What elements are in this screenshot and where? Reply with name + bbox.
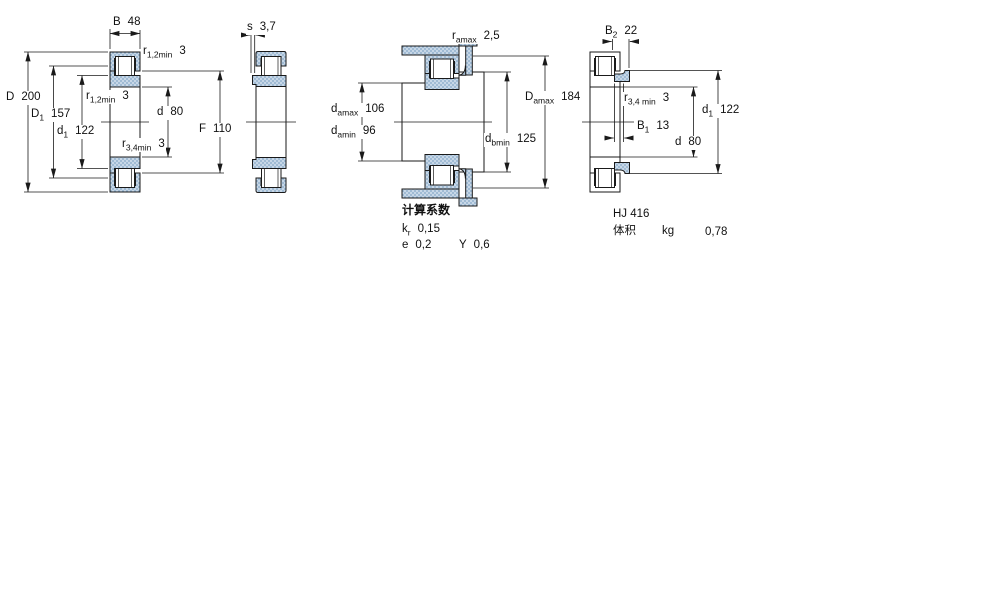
angle-ring-designation: HJ 416 — [613, 208, 649, 221]
technical-drawings-canvas — [0, 0, 1000, 600]
calc-factor-e: e0,2 — [402, 239, 431, 252]
dim-label-da-min: damin96 — [330, 125, 377, 139]
roller-top — [431, 59, 454, 79]
dim-label-db-min: dbmin125 — [484, 133, 537, 147]
dim-label-ra: ramax2,5 — [451, 30, 501, 44]
dim-label-D: D200 — [5, 91, 42, 105]
hj-angle-ring-bottom — [615, 163, 630, 174]
dim-label-s: s3,7 — [246, 21, 277, 35]
calc-factor-kr: kr0,15 — [402, 223, 440, 238]
side-view-drawing — [244, 31, 297, 193]
inner-ring-bottom — [253, 158, 287, 169]
dim-label-D1: D1157 — [30, 108, 71, 122]
dim-label-B: B48 — [112, 16, 141, 30]
dim-label-ring-d: d80 — [674, 136, 702, 150]
housing-top — [402, 46, 459, 55]
dim-label-d: d80 — [156, 106, 184, 120]
dim-label-B1: B113 — [636, 120, 670, 134]
dim-lines-D — [24, 52, 108, 192]
mass-unit: kg — [662, 225, 674, 238]
shoulder-cap-bottom — [459, 198, 477, 206]
roller-bottom — [431, 166, 454, 186]
dim-label-r12-top: r1,2min3 — [142, 45, 187, 59]
housing-bottom — [402, 189, 459, 198]
shoulder-column-bottom — [466, 169, 473, 198]
dim-label-Da-max: Damax184 — [524, 91, 581, 105]
inner-ring-top — [253, 76, 287, 87]
bearing-drawing-page: B48 r1,2min3 D200 D1157 d1122 r1,2min3 d… — [0, 0, 1000, 600]
calc-factors-title: 计算系数 — [402, 204, 450, 218]
dim-label-B2: B222 — [604, 25, 638, 39]
dim-label-ring-r34: r3,4 min3 — [623, 92, 670, 106]
calc-factor-Y: Y0,6 — [459, 239, 490, 252]
dim-label-da-max: damax106 — [330, 103, 385, 117]
dim-lines-F — [142, 71, 224, 173]
mass-label: 体积 — [613, 225, 636, 238]
dim-label-r34: r3,4min3 — [121, 138, 166, 152]
dim-label-ring-d1: d1122 — [701, 104, 740, 118]
dim-lines-B — [110, 29, 140, 49]
hj-angle-ring-top — [615, 71, 630, 82]
dim-label-F: F110 — [198, 123, 232, 137]
dim-lines-D1 — [49, 66, 108, 178]
shoulder-column-top — [466, 46, 473, 75]
dim-label-d1: d1122 — [56, 125, 95, 139]
mounted-view-drawing — [358, 38, 549, 206]
dim-label-r12-mid: r1,2min3 — [85, 90, 130, 104]
mass-value: 0,78 — [705, 226, 727, 239]
